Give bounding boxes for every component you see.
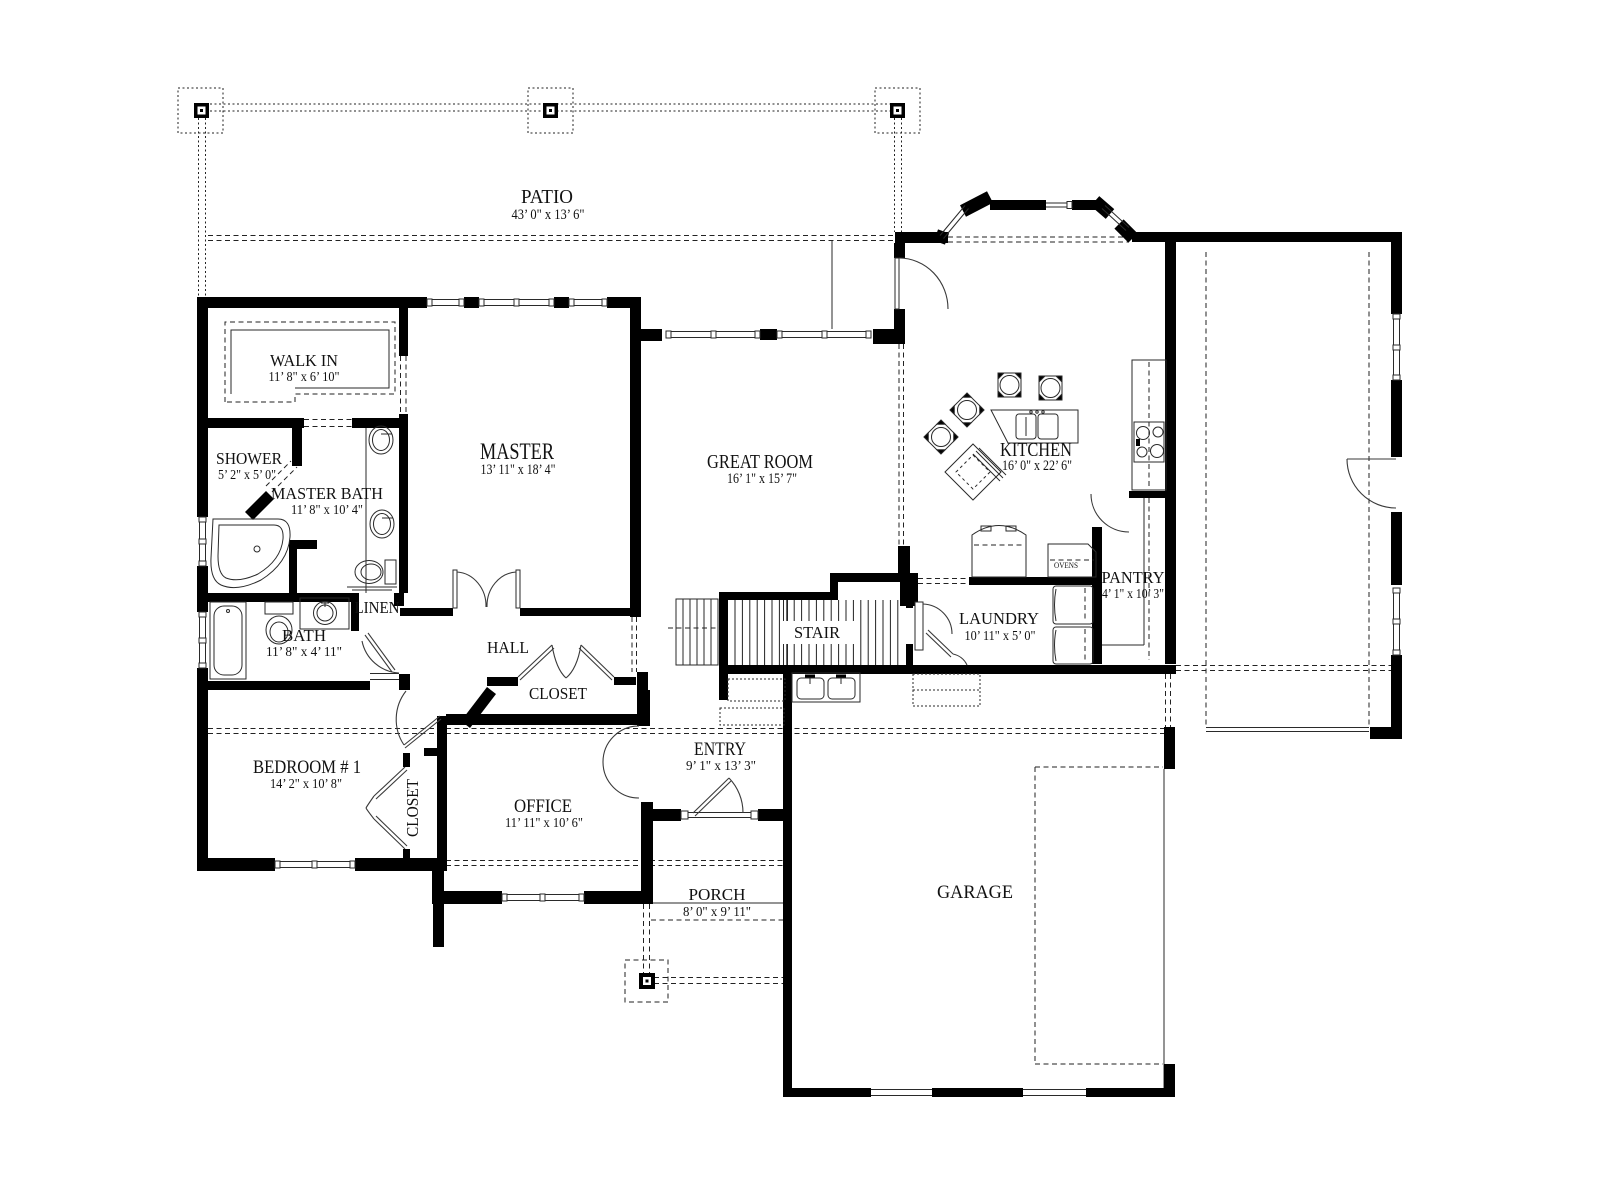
svg-text:11’ 8" x 4’ 11": 11’ 8" x 4’ 11" [266,645,342,660]
svg-text:11’ 11" x 10’ 6": 11’ 11" x 10’ 6" [505,816,583,831]
svg-text:10’ 11" x 5’ 0": 10’ 11" x 5’ 0" [965,629,1036,644]
svg-text:16’ 1" x 15’ 7": 16’ 1" x 15’ 7" [727,471,797,487]
svg-text:GREAT ROOM: GREAT ROOM [707,451,813,473]
svg-text:CLOSET: CLOSET [403,778,422,837]
svg-text:PANTRY: PANTRY [1102,568,1165,587]
svg-text:OVENS: OVENS [1054,561,1078,570]
svg-text:ENTRY: ENTRY [694,739,746,760]
svg-text:CLOSET: CLOSET [529,684,588,703]
svg-text:8’ 0" x 9’ 11": 8’ 0" x 9’ 11" [683,905,751,920]
svg-text:BATH: BATH [282,626,326,645]
svg-text:STAIR: STAIR [794,623,841,642]
svg-text:PORCH: PORCH [689,885,746,904]
svg-text:11’ 8" x 6’ 10": 11’ 8" x 6’ 10" [269,370,340,385]
svg-text:LINEN: LINEN [355,598,400,617]
svg-text:WALK IN: WALK IN [270,351,338,370]
svg-text:13’ 11" x 18’ 4": 13’ 11" x 18’ 4" [481,462,556,478]
svg-text:MASTER BATH: MASTER BATH [271,484,383,503]
svg-text:9’ 1" x 13’ 3": 9’ 1" x 13’ 3" [686,759,756,774]
svg-text:HALL: HALL [487,638,529,657]
svg-text:PATIO: PATIO [521,186,573,208]
svg-text:OFFICE: OFFICE [514,796,572,817]
svg-text:GARAGE: GARAGE [937,882,1013,903]
svg-text:43’ 0" x 13’ 6": 43’ 0" x 13’ 6" [512,207,585,223]
svg-text:BEDROOM # 1: BEDROOM # 1 [253,757,361,778]
svg-text:11’ 8" x 10’ 4": 11’ 8" x 10’ 4" [291,503,363,518]
svg-text:SHOWER: SHOWER [216,449,283,468]
svg-text:4’ 1" x 10’ 3": 4’ 1" x 10’ 3" [1102,587,1164,602]
svg-text:14’ 2" x 10’ 8": 14’ 2" x 10’ 8" [270,777,342,792]
svg-text:MASTER: MASTER [480,439,555,464]
svg-text:LAUNDRY: LAUNDRY [959,609,1039,628]
svg-text:5’ 2" x 5’ 0": 5’ 2" x 5’ 0" [218,468,276,483]
svg-text:16’ 0" x 22’ 6": 16’ 0" x 22’ 6" [1002,458,1072,474]
